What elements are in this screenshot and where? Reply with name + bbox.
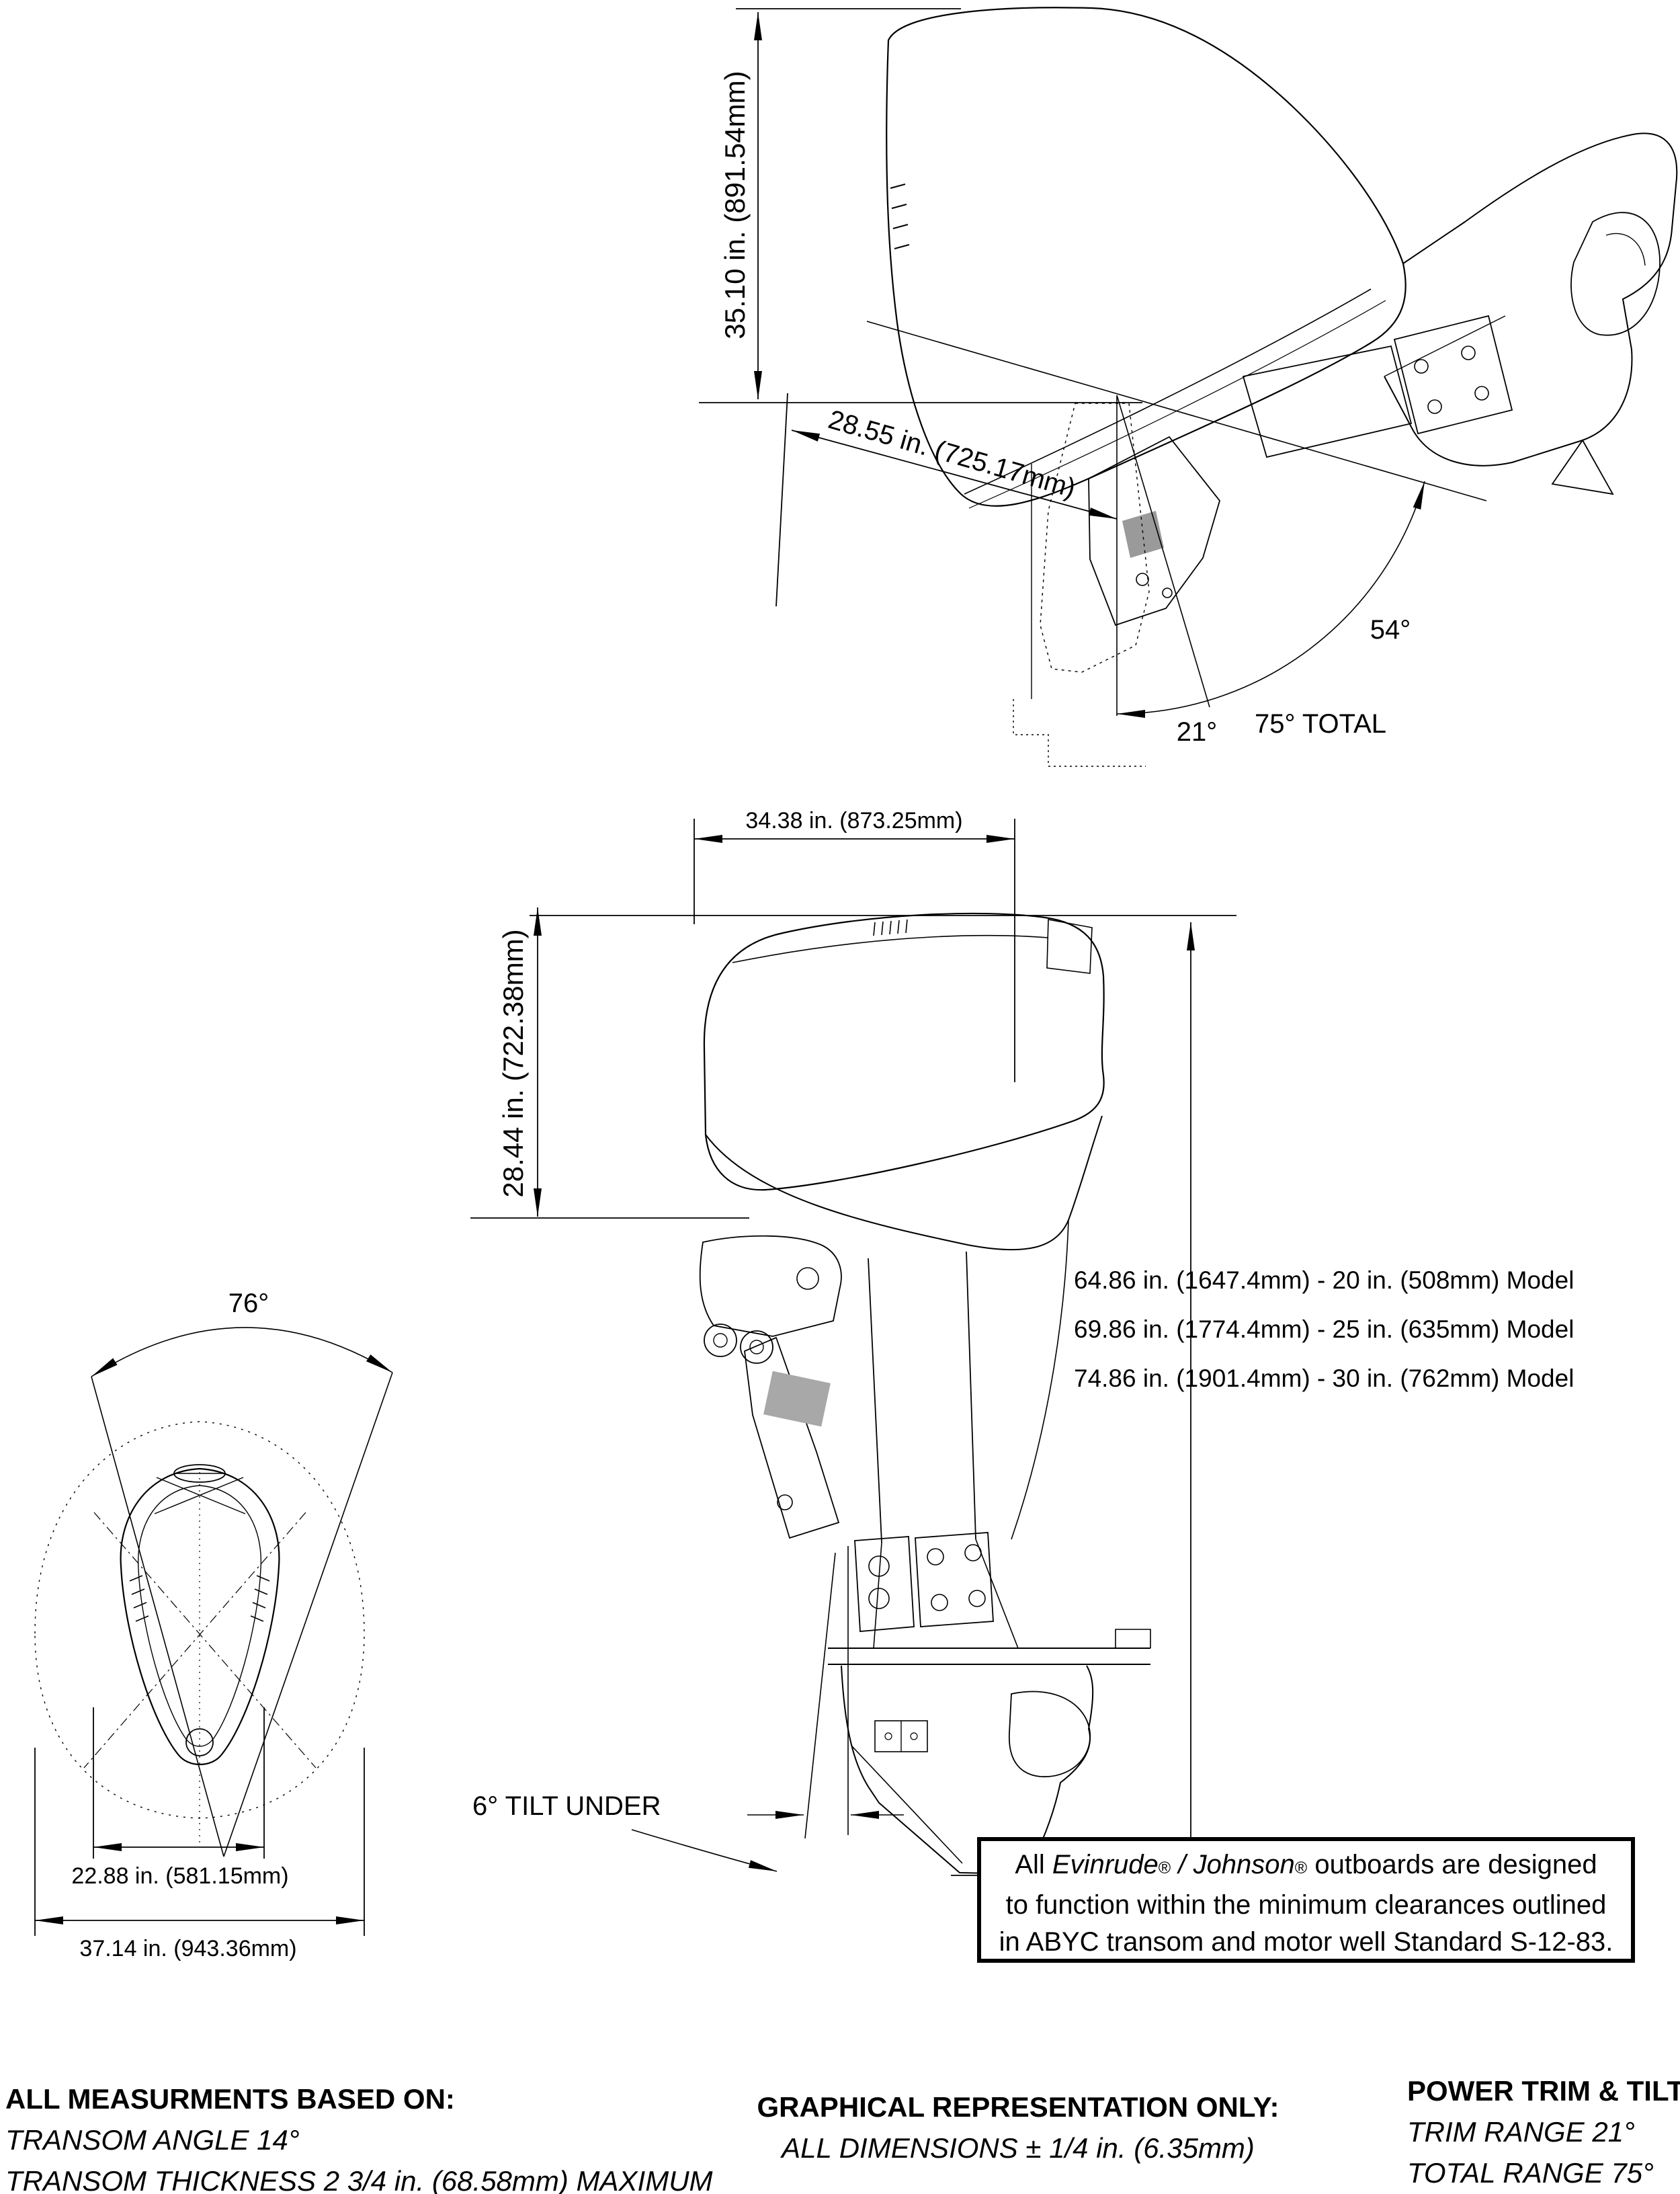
dim-height-side: 28.44 in. (722.38mm) — [497, 929, 529, 1197]
label-tilt-angle: 54° — [1370, 615, 1411, 645]
clearance-note-box: All Evinrude® / Johnson® outboards are d… — [977, 1837, 1635, 1963]
footer-representation-column: GRAPHICAL REPRESENTATION ONLY: ALL DIMEN… — [756, 2086, 1280, 2168]
footer-total-range: TOTAL RANGE 75° — [1407, 2152, 1680, 2193]
note-line-2: to function within the minimum clearance… — [981, 1887, 1631, 1924]
label-total-angle: 75° TOTAL — [1255, 709, 1386, 739]
footer-dimension-tolerance: ALL DIMENSIONS ± 1/4 in. (6.35mm) — [756, 2127, 1280, 2168]
dim-width-side: 34.38 in. (873.25mm) — [745, 808, 962, 834]
footer-measurements-title: ALL MEASURMENTS BASED ON: — [5, 2078, 713, 2119]
dim-length-tilted: 28.55 in. (725.17mm) — [825, 405, 1079, 503]
footer-transom-thickness: TRANSOM THICKNESS 2 3/4 in. (68.58mm) MA… — [5, 2160, 713, 2194]
tilted-motor-drawing — [886, 7, 1677, 766]
top-view: 76° 22.88 in. (581.15mm) 37.14 in. (943.… — [35, 1289, 392, 1961]
top-view-drawing — [35, 1422, 364, 1845]
steering-envelope — [35, 1422, 364, 1818]
tilt-under-leader — [632, 1830, 777, 1871]
dim-height-tilted: 35.10 in. (891.54mm) — [719, 71, 751, 339]
cowl-vent-slots — [890, 184, 909, 249]
footer-representation-title: GRAPHICAL REPRESENTATION ONLY: — [756, 2086, 1280, 2127]
model-length-20in: 64.86 in. (1647.4mm) - 20 in. (508mm) Mo… — [1074, 1266, 1574, 1294]
note-line-1: All Evinrude® / Johnson® outboards are d… — [981, 1846, 1631, 1887]
dim-outer-width: 37.14 in. (943.36mm) — [79, 1936, 296, 1961]
footer-trim-tilt-column: POWER TRIM & TILT: TRIM RANGE 21° TOTAL … — [1407, 2070, 1680, 2193]
footer-trim-tilt-title: POWER TRIM & TILT: — [1407, 2070, 1680, 2111]
tilted-motor-view: 35.10 in. (891.54mm) 28.55 in. (725.17mm… — [699, 7, 1677, 766]
label-tilt-under: 6° TILT UNDER — [472, 1791, 661, 1821]
top-view-vents — [130, 1576, 269, 1621]
outboard-dimension-sheet: 35.10 in. (891.54mm) 28.55 in. (725.17mm… — [0, 0, 1680, 2194]
label-trim-angle: 21° — [1177, 717, 1218, 747]
side-motor-dimensions — [470, 819, 1236, 1875]
footer-measurements-column: ALL MEASURMENTS BASED ON: TRANSOM ANGLE … — [5, 2078, 713, 2194]
cowl-logo-marks — [874, 920, 907, 936]
top-view-dimensions — [35, 1707, 364, 1936]
note-line-3: in ABYC transom and motor well Standard … — [981, 1924, 1631, 1961]
label-steering-angle: 76° — [228, 1289, 269, 1318]
model-length-30in: 74.86 in. (1901.4mm) - 30 in. (762mm) Mo… — [1074, 1365, 1574, 1392]
tilted-motor-dimensions — [699, 9, 1486, 716]
footer-transom-angle: TRANSOM ANGLE 14° — [5, 2119, 713, 2160]
side-motor-drawing — [700, 913, 1150, 1874]
side-motor-view: 34.38 in. (873.25mm) 28.44 in. (722.38mm… — [470, 808, 1574, 1875]
dim-inner-width: 22.88 in. (581.15mm) — [71, 1863, 288, 1889]
model-length-25in: 69.86 in. (1774.4mm) - 25 in. (635mm) Mo… — [1074, 1315, 1574, 1343]
footer-trim-range: TRIM RANGE 21° — [1407, 2111, 1680, 2152]
